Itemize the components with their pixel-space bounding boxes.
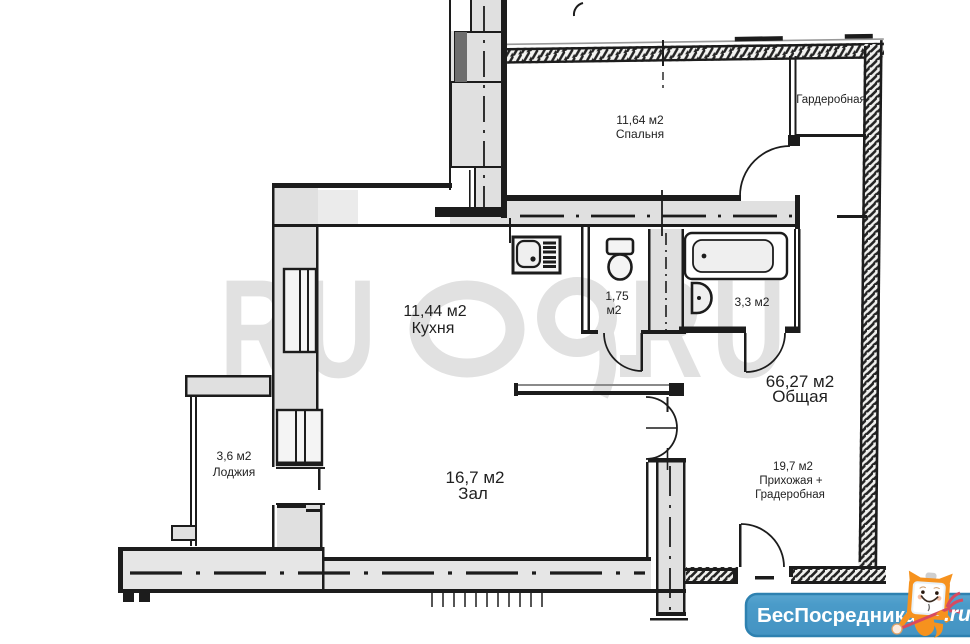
svg-text:БесПосредника: БесПосредника: [757, 604, 917, 627]
svg-text:3,6 м2: 3,6 м2: [217, 449, 252, 463]
svg-text:19,7 м2: 19,7 м2: [773, 461, 813, 473]
svg-text:3,3 м2: 3,3 м2: [735, 295, 770, 309]
svg-text:Лоджия: Лоджия: [213, 465, 256, 479]
svg-text:11,44 м2: 11,44 м2: [403, 303, 466, 320]
svg-text:Зал: Зал: [458, 484, 488, 503]
svg-text:Гардеробная: Гардеробная: [796, 94, 866, 106]
svg-text:Прихожая +: Прихожая +: [759, 475, 822, 487]
svg-text:Кухня: Кухня: [412, 320, 455, 337]
svg-text:Спальня: Спальня: [616, 127, 664, 141]
svg-text:м2: м2: [607, 303, 622, 317]
svg-text:11,64 м2: 11,64 м2: [616, 113, 664, 127]
svg-text:.ru: .ru: [944, 603, 970, 626]
svg-text:Градеробная: Градеробная: [755, 489, 825, 501]
svg-text:1,75: 1,75: [605, 289, 629, 303]
svg-text:Общая: Общая: [772, 387, 828, 406]
